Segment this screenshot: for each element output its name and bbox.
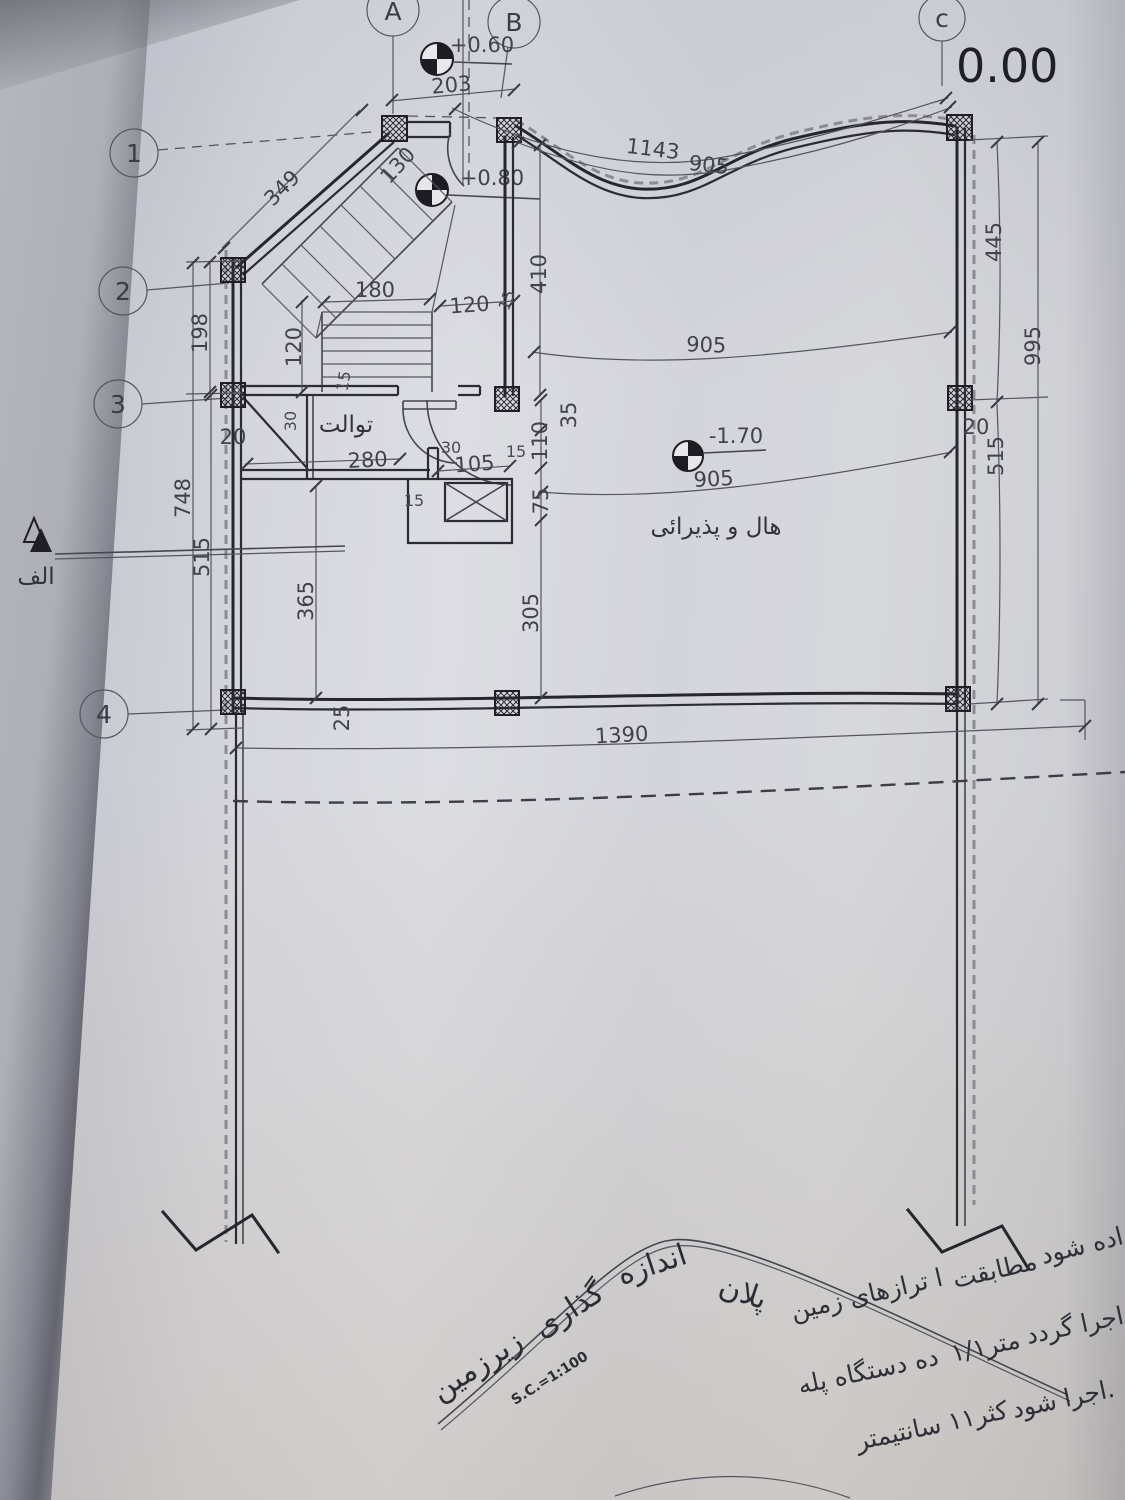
dim-120-h: 120 xyxy=(449,292,491,319)
dim-25: 25 xyxy=(330,705,354,732)
dim-15-stair: 15 xyxy=(494,287,519,313)
dim-15-b: 15 xyxy=(404,491,424,510)
dim-20-left: 20 xyxy=(220,425,247,449)
dim-105: 105 xyxy=(454,451,496,478)
section-marker: الف xyxy=(17,518,345,590)
note-3a: کثر۱۱ سانتیمتر xyxy=(851,1395,1010,1456)
dim-280: 280 xyxy=(347,447,388,473)
dim-1390: 1390 xyxy=(594,722,649,749)
dim-35: 35 xyxy=(557,402,581,429)
dim-120-v: 120 xyxy=(282,327,306,367)
dim-20-right: 20 xyxy=(963,415,990,439)
dim-905-top: 905 xyxy=(688,151,730,179)
dim-515-left: 515 xyxy=(190,537,214,577)
dim-445: 445 xyxy=(982,222,1006,262)
dim-110: 110 xyxy=(528,421,552,461)
blueprint-photo: A B c 1 2 3 4 +0 xyxy=(0,0,1125,1500)
note-3b: اجرا شود. xyxy=(1009,1374,1117,1424)
dim-30-toilet: 30 xyxy=(281,411,300,431)
title-word-gozari: گذاری xyxy=(527,1275,611,1346)
dim-130: 130 xyxy=(375,142,420,188)
section-label: الف xyxy=(17,564,54,590)
dim-995: 995 xyxy=(1021,326,1045,366)
level-value-060: +0.60 xyxy=(450,33,514,57)
grid-label-C: c xyxy=(935,4,949,33)
dimension-texts: 203 349 130 1143 905 905 905 445 515 995… xyxy=(171,71,1045,748)
dim-410: 410 xyxy=(527,254,551,294)
level-marker-080: +0.80 xyxy=(416,166,540,206)
floor-plan-drawing: A B c 1 2 3 4 +0 xyxy=(0,0,1125,1500)
note-1a: ا ترازهای زمین xyxy=(788,1263,946,1326)
dim-905-low: 905 xyxy=(693,466,734,492)
dim-305: 305 xyxy=(519,593,543,633)
title-word-plan: پلان xyxy=(715,1269,772,1317)
walls xyxy=(163,0,1125,1268)
break-line-left xyxy=(163,1212,278,1252)
grid-label-2: 2 xyxy=(115,277,131,306)
level-value-170: -1.70 xyxy=(709,424,763,448)
room-label-toilet: توالت xyxy=(319,412,373,438)
dim-1143: 1143 xyxy=(625,134,681,164)
dim-15-tread: 15 xyxy=(332,369,354,392)
note-1b: مطابقت xyxy=(950,1246,1040,1294)
dim-748: 748 xyxy=(171,478,195,518)
dim-905-mid: 905 xyxy=(686,332,727,357)
level-marker-170: -1.70 xyxy=(673,424,766,471)
grid-label-1: 1 xyxy=(126,139,142,168)
note-2c: اجرا گردد. xyxy=(1023,1299,1125,1350)
dim-515-right: 515 xyxy=(984,436,1008,476)
grid-label-3: 3 xyxy=(110,390,126,419)
note-1c: داده شود xyxy=(1037,1219,1125,1270)
note-2a: ده دستگاه پله xyxy=(795,1342,941,1400)
grid-label-4: 4 xyxy=(96,700,112,729)
level-value-zero: 0.00 xyxy=(956,39,1058,93)
level-marker-060: +0.60 xyxy=(421,33,514,75)
grid-label-A: A xyxy=(384,0,401,26)
dim-203: 203 xyxy=(430,71,472,98)
title-word-andaze: اندازه xyxy=(613,1237,691,1292)
dim-75: 75 xyxy=(529,488,553,515)
dim-198: 198 xyxy=(188,313,212,353)
dim-180: 180 xyxy=(355,278,395,302)
dim-365: 365 xyxy=(294,581,318,621)
notes: ا ترازهای زمین مطابقت داده شود ده دستگاه… xyxy=(788,1219,1125,1457)
room-label-hall: هال و پذیرائی xyxy=(650,514,781,540)
dim-15-a: 15 xyxy=(506,442,526,461)
